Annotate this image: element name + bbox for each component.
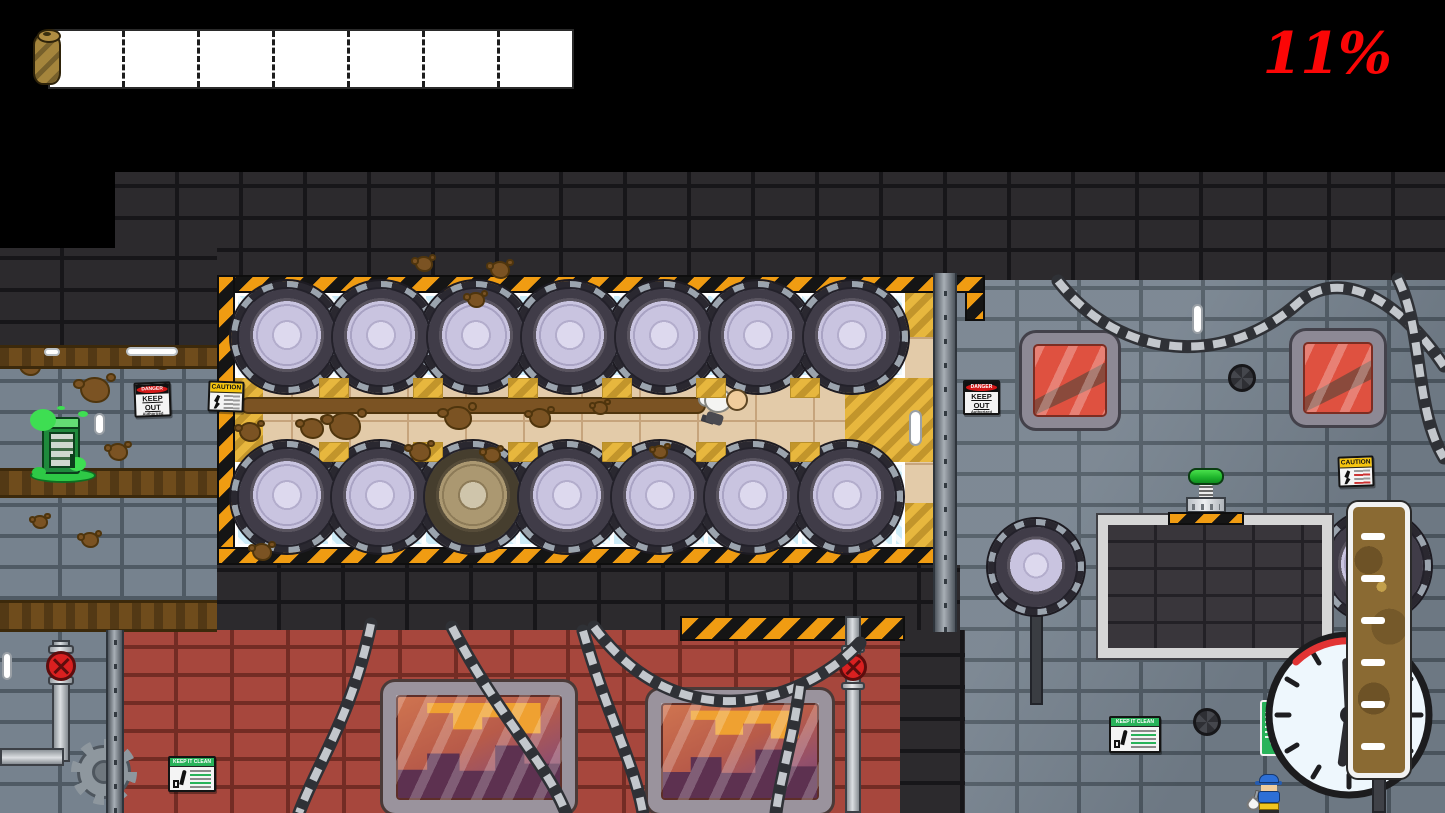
mud-splat: [654, 447, 666, 457]
slip-hazard-icon: [1342, 470, 1352, 484]
washer-drum: [425, 449, 521, 545]
green-button[interactable]: [1188, 468, 1224, 485]
paper-progress-bar: [48, 29, 574, 89]
washer-drum: [616, 289, 712, 385]
keep-clean-header: KEEP IT CLEAN: [170, 758, 214, 767]
button-pedestal: [1186, 497, 1226, 513]
janitor-npc: [1246, 774, 1290, 813]
gauge-tick: [1361, 701, 1385, 708]
washer-drum: [239, 289, 335, 385]
danger-title: KEEP OUT: [965, 392, 998, 410]
caution-sign: CAUTION: [1337, 455, 1374, 487]
washer-drum: [519, 449, 615, 545]
door-handle[interactable]: [909, 410, 922, 446]
progress-segment: [350, 31, 425, 87]
washer-drum: [705, 449, 801, 545]
button-hazard-base: [1168, 512, 1244, 525]
mud-splat: [411, 444, 429, 459]
hazard-floor-patch: [508, 442, 538, 462]
mud-splat: [469, 294, 483, 306]
mud-splat: [34, 517, 46, 527]
hazard-floor-patch: [696, 378, 726, 398]
slip-hazard-icon: [212, 395, 222, 409]
sign-text-lines: [1131, 730, 1156, 748]
keep-clean-body: [1111, 727, 1159, 751]
progress-segment: [425, 31, 500, 87]
wall-light: [94, 413, 105, 435]
pipe-flange: [841, 645, 865, 653]
progress-segment: [50, 31, 125, 87]
dirt-ledge-lower: [0, 600, 217, 632]
washer-drum: [710, 289, 806, 385]
washer-drum: [804, 289, 900, 385]
player-feet: [705, 411, 725, 427]
hazard-floor-patch: [508, 378, 538, 398]
hazard-floor-patch: [413, 378, 443, 398]
washer-drum: [522, 289, 618, 385]
danger-subtitle: Authorized personnel only: [965, 410, 998, 415]
sign-text-lines: [1354, 470, 1370, 485]
mud-splat: [594, 403, 606, 413]
sign-text-lines: [224, 395, 240, 410]
ceiling-light: [126, 347, 178, 356]
keep-it-clean-sign: KEEP IT CLEAN: [168, 756, 216, 792]
npc-torso: [1258, 791, 1280, 803]
metal-beam-red-room-left: [106, 630, 124, 813]
gauge-tick: [1361, 617, 1385, 624]
vending-slot: [70, 454, 75, 468]
progress-segment: [500, 31, 572, 87]
danger-sign: DANGER KEEP OUT Authorized personnel onl…: [963, 380, 1000, 415]
gauge-pole: [1372, 778, 1386, 813]
danger-title: KEEP OUT: [136, 393, 170, 412]
danger-header-bar: DANGER: [965, 382, 998, 392]
wall-light: [2, 652, 12, 680]
mud-splat: [241, 424, 259, 439]
washer-drum: [333, 289, 429, 385]
mud-splat: [417, 258, 431, 270]
caution-body: [1340, 467, 1373, 486]
slimed-vending-machine[interactable]: [42, 417, 80, 474]
red-valve-wheel[interactable]: [839, 653, 867, 681]
gauge-tick: [1361, 659, 1385, 666]
caution-sign: CAUTION: [207, 380, 244, 412]
sign-text-lines: [190, 770, 211, 788]
vending-header: [44, 419, 78, 429]
keep-it-clean-sign: KEEP IT CLEAN: [1109, 716, 1161, 753]
mud-splat: [82, 379, 108, 401]
blue-cap: [1259, 774, 1279, 783]
hazard-floor-patch: [319, 442, 349, 462]
washer-drum: [332, 449, 428, 545]
mud-splat: [531, 410, 549, 425]
metal-beam-room-right: [933, 273, 957, 632]
hazard-floor-patch: [790, 378, 820, 398]
ceiling-light: [44, 348, 60, 356]
litter-disposal-icon: [1114, 730, 1128, 748]
gauge-tick: [1361, 575, 1385, 582]
hazard-floor-patch: [319, 378, 349, 398]
keep-clean-body: [170, 767, 214, 791]
hazard-floor-patch: [602, 378, 632, 398]
washer-drum: [239, 449, 335, 545]
mud-splat: [110, 445, 126, 459]
mud-splat: [302, 420, 322, 437]
pipe-flange: [841, 682, 865, 690]
danger-oval: DANGER: [966, 384, 998, 391]
player-head: [726, 389, 748, 411]
caution-body: [210, 392, 243, 411]
gauge-tick: [1361, 743, 1385, 750]
mud-splat: [254, 545, 270, 559]
progress-segment: [275, 31, 350, 87]
mud-splat: [331, 414, 359, 438]
keep-clean-header: KEEP IT CLEAN: [1111, 718, 1159, 727]
mud-splat: [492, 263, 508, 277]
dirt-gauge: [1348, 502, 1410, 778]
mud-splat: [485, 449, 499, 461]
washer-drum: [612, 449, 708, 545]
washer-drum: [996, 527, 1076, 607]
danger-sign: DANGER KEEP OUT Authorized personnel onl…: [133, 381, 171, 417]
completion-label: 11%: [1263, 24, 1390, 84]
gauge-tick: [1361, 533, 1385, 540]
mud-splat: [446, 408, 470, 428]
progress-segment: [125, 31, 200, 87]
red-valve-wheel[interactable]: [46, 651, 76, 681]
toilet-paper-roll-icon: [33, 33, 61, 85]
hazard-floor-patch: [602, 442, 632, 462]
game-viewport: ♥: [0, 0, 1445, 813]
progress-segment: [200, 31, 275, 87]
pipe-horizontal-left: [0, 748, 64, 766]
npc-pants: [1259, 803, 1279, 810]
danger-oval: DANGER: [136, 385, 168, 393]
washer-drum: [799, 449, 895, 545]
litter-disposal-icon: [173, 770, 187, 788]
mud-splat: [83, 534, 97, 546]
dirt-ledge-top: [0, 345, 217, 369]
